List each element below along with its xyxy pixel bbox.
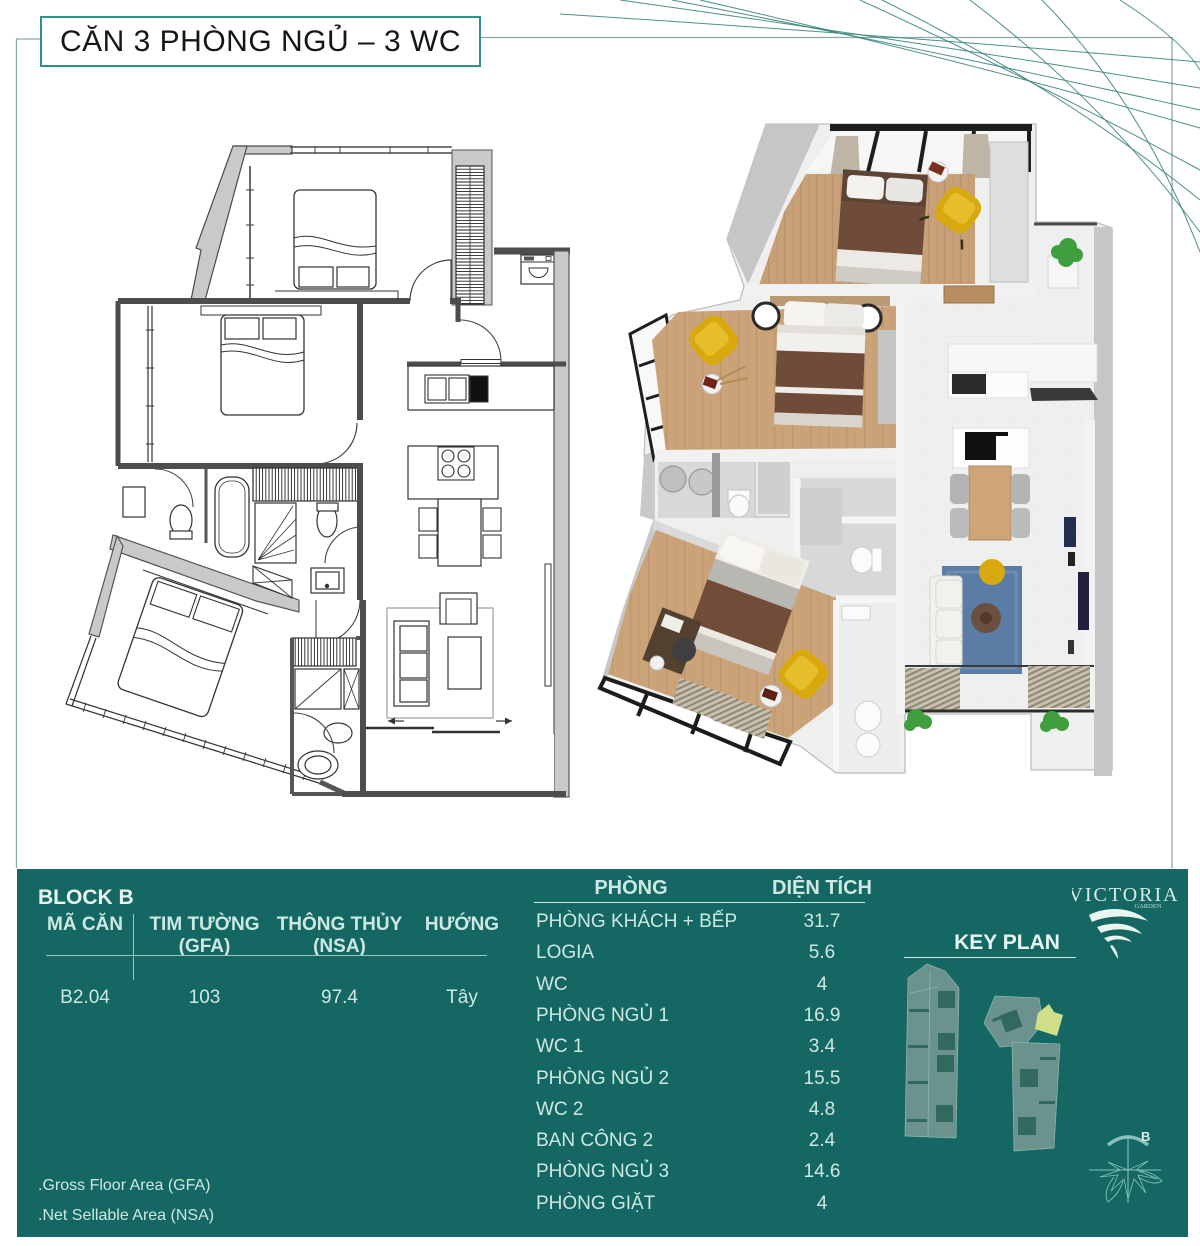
svg-text:GARDEN: GARDEN — [1134, 903, 1161, 910]
svg-text:B: B — [1141, 1129, 1150, 1144]
svg-text:VICTORIA: VICTORIA — [1072, 884, 1180, 906]
